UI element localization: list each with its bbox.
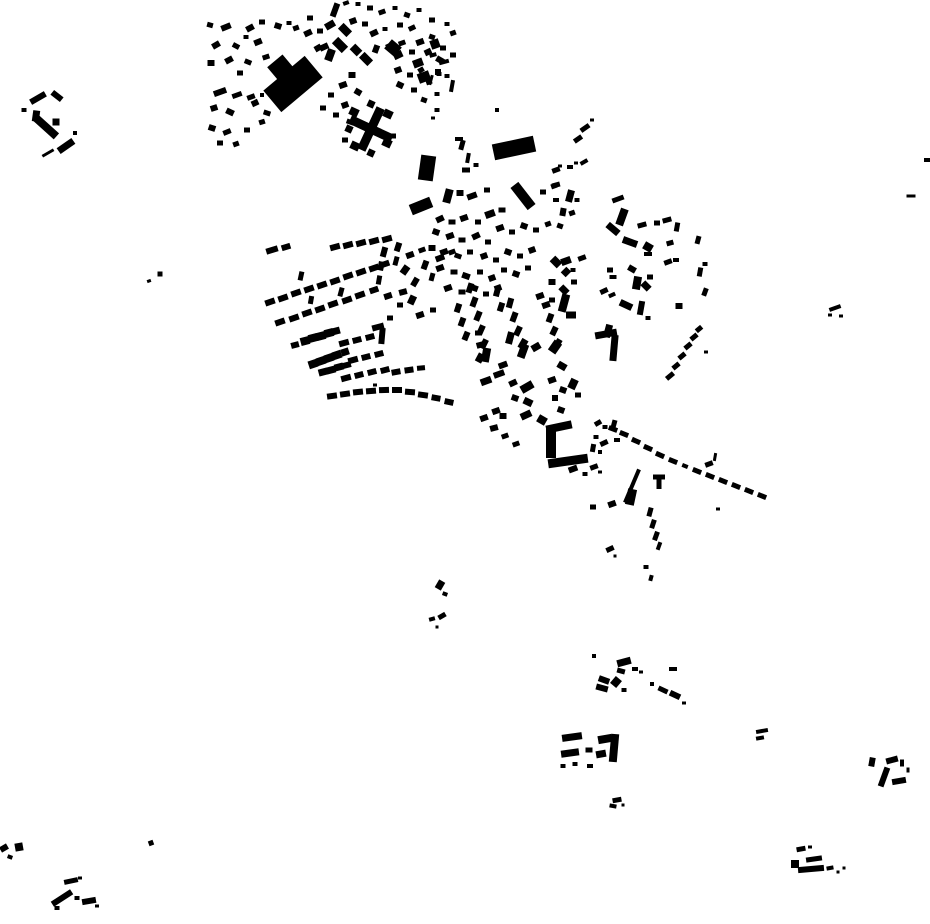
building-footprint bbox=[533, 228, 539, 233]
building-footprint bbox=[392, 387, 402, 393]
building-footprint bbox=[718, 477, 728, 485]
building-footprint bbox=[362, 22, 368, 27]
building-footprint bbox=[305, 72, 309, 76]
building-footprint bbox=[701, 287, 708, 296]
building-footprint bbox=[632, 667, 638, 671]
building-footprint bbox=[324, 19, 336, 30]
building-footprint bbox=[258, 119, 265, 126]
building-footprint bbox=[409, 197, 434, 215]
building-footprint bbox=[314, 305, 325, 314]
building-footprint bbox=[610, 676, 622, 688]
building-footprint bbox=[378, 8, 386, 15]
building-footprint bbox=[631, 437, 641, 445]
building-footprint bbox=[798, 865, 824, 873]
building-footprint bbox=[342, 138, 348, 143]
building-footprint bbox=[558, 293, 570, 312]
building-footprint bbox=[493, 369, 505, 378]
building-footprint bbox=[648, 575, 653, 582]
building-footprint bbox=[340, 390, 351, 397]
building-footprint bbox=[469, 296, 478, 307]
building-footprint bbox=[483, 292, 489, 297]
building-footprint bbox=[480, 252, 489, 260]
building-footprint bbox=[417, 365, 425, 371]
building-footprint bbox=[14, 842, 23, 851]
building-footprint bbox=[462, 168, 470, 173]
building-footprint bbox=[640, 280, 651, 291]
building-footprint bbox=[405, 389, 415, 396]
building-footprint bbox=[744, 487, 754, 495]
building-footprint bbox=[450, 53, 456, 58]
building-footprint bbox=[562, 732, 583, 742]
building-footprint bbox=[33, 115, 59, 140]
figure-ground-map bbox=[0, 0, 930, 924]
building-footprint bbox=[147, 279, 152, 283]
building-footprint bbox=[442, 188, 453, 204]
building-footprint bbox=[599, 439, 608, 447]
building-footprint bbox=[380, 246, 388, 257]
building-footprint bbox=[316, 281, 327, 290]
building-footprint bbox=[556, 361, 567, 372]
building-footprint bbox=[598, 450, 602, 454]
building-footprint bbox=[237, 71, 243, 76]
building-footprint bbox=[437, 612, 446, 620]
building-footprint bbox=[546, 428, 556, 458]
building-footprint bbox=[549, 298, 555, 303]
building-footprint bbox=[567, 165, 573, 169]
building-footprint bbox=[354, 291, 365, 300]
building-footprint bbox=[274, 318, 285, 327]
building-footprint bbox=[53, 119, 60, 126]
building-footprint bbox=[599, 287, 608, 295]
building-footprint bbox=[573, 134, 583, 143]
building-footprint bbox=[756, 728, 769, 734]
building-footprint bbox=[595, 684, 608, 693]
building-footprint bbox=[354, 371, 364, 379]
building-footprint bbox=[568, 465, 579, 474]
building-footprint bbox=[253, 38, 263, 47]
building-footprint bbox=[590, 119, 594, 122]
building-footprint bbox=[225, 108, 235, 117]
building-footprint bbox=[410, 277, 420, 288]
building-footprint bbox=[262, 54, 270, 61]
building-footprint bbox=[557, 406, 566, 414]
building-footprint bbox=[461, 272, 471, 280]
building-footprint bbox=[885, 756, 898, 765]
building-footprint bbox=[455, 137, 463, 141]
building-footprint bbox=[432, 228, 441, 236]
building-footprint bbox=[457, 190, 464, 196]
building-footprint bbox=[796, 846, 806, 852]
building-footprint bbox=[608, 292, 616, 299]
building-footprint bbox=[288, 314, 299, 323]
building-footprint bbox=[260, 93, 264, 97]
building-footprint bbox=[510, 182, 535, 210]
building-footprint bbox=[652, 531, 660, 541]
building-footprint bbox=[546, 313, 555, 324]
building-footprint bbox=[435, 579, 446, 590]
building-footprint bbox=[51, 889, 74, 907]
building-footprint bbox=[485, 240, 491, 245]
building-footprint bbox=[731, 482, 741, 490]
building-footprint bbox=[551, 166, 560, 173]
building-footprint bbox=[435, 254, 446, 263]
building-footprint bbox=[598, 471, 602, 474]
building-footprint bbox=[466, 191, 477, 200]
building-footprint bbox=[616, 668, 625, 675]
building-footprint bbox=[551, 182, 560, 189]
building-footprint bbox=[509, 230, 515, 235]
building-footprint bbox=[549, 326, 558, 337]
building-footprint bbox=[605, 545, 614, 553]
building-footprint bbox=[492, 136, 536, 160]
building-footprint bbox=[594, 419, 603, 427]
building-footprint bbox=[451, 270, 458, 275]
building-footprint bbox=[499, 208, 506, 213]
building-footprint bbox=[611, 419, 618, 428]
building-footprint bbox=[713, 453, 717, 461]
building-footprint bbox=[42, 148, 55, 157]
building-footprint bbox=[522, 397, 533, 407]
building-footprint bbox=[520, 410, 533, 421]
building-footprint bbox=[716, 508, 720, 511]
building-footprint bbox=[535, 292, 545, 300]
building-footprint bbox=[609, 335, 618, 362]
building-footprint bbox=[590, 444, 596, 453]
building-footprint bbox=[657, 479, 662, 489]
building-footprint bbox=[329, 243, 340, 251]
building-footprint bbox=[348, 106, 360, 117]
building-footprint bbox=[353, 88, 362, 97]
building-footprint bbox=[665, 371, 675, 381]
building-footprint bbox=[244, 35, 249, 39]
building-footprint bbox=[590, 505, 596, 510]
building-footprint bbox=[301, 309, 312, 318]
building-footprint bbox=[210, 104, 219, 112]
building-footprint bbox=[75, 896, 80, 900]
building-footprint bbox=[349, 72, 356, 78]
building-footprint bbox=[391, 368, 401, 375]
building-footprint bbox=[669, 667, 677, 671]
building-footprint bbox=[488, 274, 497, 282]
building-footprint bbox=[619, 430, 629, 438]
building-footprint bbox=[405, 251, 415, 259]
building-footprint bbox=[549, 279, 556, 285]
building-footprint bbox=[73, 131, 77, 135]
building-footprint bbox=[347, 356, 358, 364]
building-footprint bbox=[501, 432, 509, 439]
building-footprint bbox=[465, 153, 471, 164]
building-footprint bbox=[616, 657, 631, 667]
building-footprint bbox=[625, 488, 637, 506]
building-footprint bbox=[338, 23, 352, 37]
building-footprint bbox=[55, 906, 60, 910]
building-footprint bbox=[655, 451, 665, 459]
building-footprint bbox=[682, 702, 686, 705]
building-footprint bbox=[245, 23, 255, 32]
building-footprint bbox=[397, 23, 403, 28]
building-footprint bbox=[224, 55, 234, 64]
building-footprint bbox=[417, 8, 422, 12]
building-footprint bbox=[64, 877, 79, 885]
building-footprint bbox=[868, 757, 875, 767]
building-footprint bbox=[622, 688, 627, 692]
building-footprint bbox=[703, 262, 708, 266]
building-footprint bbox=[396, 81, 405, 89]
building-footprint bbox=[607, 268, 613, 273]
building-footprint bbox=[495, 108, 499, 112]
building-footprint bbox=[612, 195, 625, 204]
building-footprint bbox=[367, 368, 377, 376]
building-footprint bbox=[418, 155, 436, 182]
building-footprint bbox=[390, 134, 396, 139]
building-footprint bbox=[308, 296, 314, 305]
building-footprint bbox=[489, 424, 498, 432]
building-footprint bbox=[674, 222, 680, 232]
building-footprint bbox=[808, 846, 812, 849]
building-footprint bbox=[361, 353, 371, 361]
building-footprint bbox=[206, 22, 213, 28]
building-footprint bbox=[579, 123, 590, 133]
building-footprint bbox=[387, 316, 393, 321]
building-footprint bbox=[329, 277, 340, 286]
building-footprint bbox=[668, 457, 678, 465]
building-footprint bbox=[444, 398, 454, 406]
building-footprint bbox=[520, 222, 529, 230]
building-footprint bbox=[82, 897, 97, 905]
building-footprint bbox=[443, 284, 453, 292]
building-footprint bbox=[436, 626, 439, 629]
building-footprint bbox=[646, 316, 651, 320]
building-footprint bbox=[376, 275, 382, 285]
building-footprint bbox=[573, 762, 578, 766]
building-footprint bbox=[587, 764, 593, 768]
building-footprint bbox=[264, 298, 275, 307]
building-footprint bbox=[208, 124, 217, 132]
building-footprint bbox=[377, 261, 385, 271]
building-footprint bbox=[374, 350, 384, 358]
building-footprint bbox=[274, 22, 283, 30]
building-footprint bbox=[580, 158, 589, 165]
building-footprint bbox=[568, 210, 575, 217]
building-footprint bbox=[583, 472, 588, 476]
building-footprint bbox=[900, 760, 904, 767]
building-footprint bbox=[497, 302, 505, 312]
building-footprint bbox=[344, 124, 353, 133]
building-footprint bbox=[341, 101, 350, 109]
building-footprint bbox=[356, 2, 361, 6]
building-footprint bbox=[383, 292, 392, 300]
building-footprint bbox=[398, 288, 407, 296]
building-footprint bbox=[232, 42, 241, 50]
building-footprint bbox=[642, 241, 654, 252]
building-footprint bbox=[22, 108, 27, 112]
building-footprint bbox=[287, 21, 292, 25]
building-footprint bbox=[251, 99, 260, 107]
building-footprint bbox=[467, 250, 473, 255]
building-footprint bbox=[449, 80, 455, 93]
building-footprint bbox=[404, 366, 414, 373]
building-footprint bbox=[327, 392, 338, 399]
building-footprint bbox=[757, 492, 767, 500]
building-footprint bbox=[697, 267, 703, 277]
building-footprint bbox=[0, 843, 9, 852]
building-footprint bbox=[609, 803, 617, 808]
building-footprint bbox=[459, 290, 466, 295]
building-footprint bbox=[445, 74, 450, 78]
building-footprint bbox=[372, 44, 380, 54]
building-footprint bbox=[559, 208, 566, 217]
building-footprint bbox=[352, 336, 362, 344]
building-footprint bbox=[517, 254, 523, 259]
building-footprint bbox=[263, 110, 271, 117]
building-footprint bbox=[440, 46, 446, 51]
building-footprint bbox=[650, 682, 654, 686]
building-footprint bbox=[589, 463, 598, 470]
building-footprint bbox=[512, 440, 520, 447]
building-footprint bbox=[338, 339, 349, 347]
building-footprint bbox=[431, 394, 441, 401]
building-footprint bbox=[598, 675, 610, 684]
building-footprint bbox=[303, 29, 313, 38]
building-footprint bbox=[333, 113, 339, 118]
building-footprint bbox=[368, 237, 379, 245]
building-footprint bbox=[259, 20, 265, 25]
building-footprint bbox=[475, 331, 481, 336]
building-footprint bbox=[435, 215, 445, 224]
building-footprint bbox=[445, 232, 455, 240]
building-footprint bbox=[303, 285, 314, 294]
building-footprint bbox=[298, 271, 305, 281]
building-footprint bbox=[528, 246, 537, 254]
building-footprint bbox=[430, 308, 436, 313]
building-footprint bbox=[644, 565, 649, 569]
building-footprint bbox=[627, 264, 637, 273]
building-footprint bbox=[350, 44, 363, 57]
building-footprint bbox=[550, 256, 563, 269]
building-footprint bbox=[366, 99, 375, 108]
building-footprint bbox=[695, 235, 702, 244]
building-footprint bbox=[654, 221, 660, 226]
building-footprint bbox=[359, 52, 373, 66]
building-footprint bbox=[403, 12, 410, 19]
building-footprint bbox=[435, 92, 440, 96]
building-footprint bbox=[429, 272, 436, 281]
building-footprint bbox=[540, 190, 546, 195]
building-footprint bbox=[435, 108, 440, 112]
building-footprint bbox=[366, 148, 375, 157]
building-footprint bbox=[637, 221, 647, 228]
building-footprint bbox=[222, 128, 231, 136]
building-footprint bbox=[394, 242, 402, 252]
building-footprint bbox=[217, 141, 223, 146]
building-footprint bbox=[662, 216, 672, 223]
building-footprint bbox=[392, 256, 399, 266]
building-footprint bbox=[607, 500, 617, 508]
building-footprint bbox=[431, 117, 435, 120]
building-footprint bbox=[586, 748, 593, 753]
building-footprint bbox=[647, 275, 653, 280]
building-footprint bbox=[458, 317, 467, 328]
building-footprint bbox=[571, 268, 576, 272]
building-footprint bbox=[491, 407, 501, 415]
building-footprint bbox=[290, 341, 299, 349]
building-footprint bbox=[484, 209, 496, 219]
building-footprint bbox=[924, 158, 930, 162]
building-footprint bbox=[704, 460, 713, 467]
building-footprint bbox=[610, 275, 617, 279]
building-footprint bbox=[307, 16, 313, 21]
building-footprint bbox=[561, 748, 580, 757]
building-footprint bbox=[829, 304, 842, 312]
building-footprint bbox=[265, 245, 278, 254]
map-canvas bbox=[0, 0, 930, 924]
building-footprint bbox=[666, 240, 674, 247]
building-footprint bbox=[454, 303, 462, 313]
building-footprint bbox=[435, 69, 441, 75]
building-footprint bbox=[705, 472, 715, 480]
building-footprint bbox=[544, 221, 551, 228]
building-footprint bbox=[603, 425, 608, 429]
building-footprint bbox=[639, 671, 643, 674]
building-footprint bbox=[500, 413, 507, 419]
building-footprint bbox=[415, 311, 424, 319]
building-footprint bbox=[480, 376, 493, 386]
building-footprint bbox=[78, 877, 82, 880]
building-footprint bbox=[466, 282, 475, 293]
building-footprint bbox=[415, 38, 425, 46]
building-footprint bbox=[246, 93, 255, 100]
building-footprint bbox=[592, 654, 596, 658]
building-footprint bbox=[381, 235, 392, 243]
building-footprint bbox=[407, 294, 417, 305]
building-footprint bbox=[244, 58, 252, 65]
building-footprint bbox=[429, 245, 436, 251]
building-footprint bbox=[519, 380, 534, 393]
building-footprint bbox=[442, 591, 448, 596]
building-footprint bbox=[644, 252, 652, 256]
building-footprint bbox=[429, 616, 436, 621]
building-footprint bbox=[493, 258, 499, 263]
building-footprint bbox=[595, 750, 606, 759]
building-footprint bbox=[383, 27, 388, 31]
building-footprint bbox=[421, 260, 430, 271]
building-footprint bbox=[474, 163, 479, 167]
building-footprint bbox=[495, 224, 505, 232]
building-footprint bbox=[673, 258, 679, 262]
building-footprint bbox=[29, 91, 47, 105]
building-footprint bbox=[277, 294, 288, 303]
building-footprint bbox=[505, 331, 515, 344]
building-footprint bbox=[559, 386, 568, 394]
building-footprint bbox=[614, 555, 617, 558]
building-footprint bbox=[597, 734, 612, 744]
building-footprint bbox=[622, 236, 638, 248]
building-footprint bbox=[95, 905, 99, 908]
building-footprint bbox=[458, 140, 465, 151]
building-footprint bbox=[281, 243, 291, 251]
building-footprint bbox=[50, 90, 63, 102]
building-footprint bbox=[418, 246, 426, 253]
building-footprint bbox=[612, 797, 622, 803]
building-footprint bbox=[411, 88, 417, 93]
building-footprint bbox=[208, 60, 215, 66]
building-footprint bbox=[400, 264, 411, 275]
building-footprint bbox=[653, 475, 665, 480]
building-footprint bbox=[349, 140, 361, 151]
building-footprint bbox=[669, 690, 682, 700]
building-footprint bbox=[373, 384, 377, 387]
building-footprint bbox=[355, 268, 366, 277]
